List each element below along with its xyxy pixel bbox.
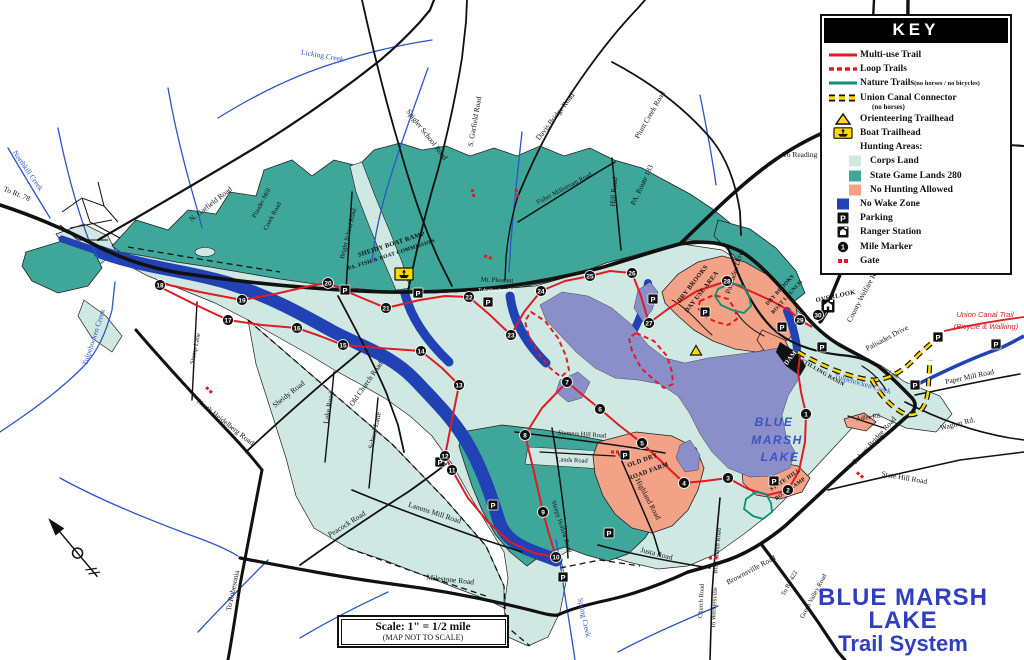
svg-text:11: 11 (449, 467, 456, 474)
mile-marker-30: 30 (813, 310, 824, 321)
line-dash-key-icon (826, 63, 860, 75)
scale-note: (MAP NOT TO SCALE) (342, 633, 505, 642)
key-item-corps-land: Corps Land (826, 154, 1006, 168)
key-item-label: No Wake Zone (860, 199, 920, 209)
svg-text:P: P (819, 343, 824, 352)
parking-icon: P (700, 307, 710, 317)
key-item-note: (no horses) (872, 103, 1006, 111)
mile-marker-17: 17 (223, 315, 234, 326)
key-item-label: Orienteering Trailhead (860, 114, 954, 124)
key-item-hunting-areas: Hunting Areas: (826, 140, 1006, 154)
svg-text:P: P (606, 529, 611, 538)
blue-marsh-trail-map: To Rt. 78N. Garfield RoadPlauder MillCre… (0, 0, 1024, 660)
scale-box: Scale: 1" = 1/2 mile (MAP NOT TO SCALE) (337, 615, 509, 648)
area-label: OVERLOOK (815, 289, 856, 304)
svg-text:20: 20 (324, 280, 332, 287)
key-item-nature-trails: Nature Trails (no horses / no bicycles) (826, 76, 1006, 90)
line-canal-key-icon (826, 92, 860, 104)
ranger-key-icon (826, 226, 860, 238)
mile-marker-24: 24 (536, 286, 547, 297)
key-item-label: No Hunting Allowed (870, 185, 953, 195)
title-line-1: BLUE MARSH (788, 586, 1018, 609)
key-item-label: Union Canal Connector (860, 93, 957, 103)
boat-key-icon (826, 127, 860, 139)
svg-text:2: 2 (786, 487, 790, 494)
key-item-label: Loop Trails (860, 64, 907, 74)
svg-text:3: 3 (726, 475, 730, 482)
svg-text:P: P (771, 477, 776, 486)
mile-marker-21: 21 (381, 303, 392, 314)
key-item-label: Nature Trails (860, 78, 914, 88)
key-legend: KEY Multi-use TrailLoop TrailsNature Tra… (820, 14, 1012, 275)
svg-text:P: P (485, 298, 490, 307)
svg-text:26: 26 (628, 270, 636, 277)
key-item-label: Corps Land (870, 156, 919, 166)
key-item-no-wake-zone: No Wake Zone (826, 197, 1006, 211)
svg-text:P: P (342, 286, 347, 295)
mile-marker-13: 13 (454, 380, 465, 391)
svg-text:7: 7 (565, 379, 569, 386)
svg-text:16: 16 (293, 325, 301, 332)
mile-marker-20: 20 (323, 278, 334, 289)
mile-marker-22: 22 (464, 292, 475, 303)
svg-text:P: P (779, 323, 784, 332)
svg-text:15: 15 (339, 342, 347, 349)
gate-key-icon (826, 255, 860, 267)
key-title: KEY (824, 18, 1008, 43)
mile-marker-4: 4 (679, 478, 690, 489)
svg-text:30: 30 (814, 312, 822, 319)
parking-icon: P (488, 500, 498, 510)
svg-text:P: P (415, 289, 420, 298)
mile-marker-3: 3 (723, 473, 734, 484)
scale-text: Scale: 1" = 1/2 mile (342, 621, 505, 633)
union-canal-label: Union Canal Trail (956, 310, 1014, 319)
mile-marker-15: 15 (338, 340, 349, 351)
svg-text:1: 1 (841, 244, 845, 251)
svg-text:23: 23 (507, 332, 515, 339)
mile-marker-29: 29 (795, 315, 806, 326)
parking-icon: P (604, 528, 614, 538)
mile-marker-7: 7 (562, 377, 573, 388)
ranger-station-icon (822, 300, 835, 313)
key-item-label: Ranger Station (860, 227, 921, 237)
parking-icon: P (620, 450, 630, 460)
svg-text:P: P (993, 340, 998, 349)
mile-marker-23: 23 (506, 330, 517, 341)
svg-text:28: 28 (723, 278, 731, 285)
gate-icon (856, 471, 864, 478)
key-item-label: Multi-use Trail (860, 50, 921, 60)
mile-marker-14: 14 (416, 346, 427, 357)
svg-text:10: 10 (552, 554, 560, 561)
svg-text:P: P (702, 308, 707, 317)
key-item-ranger-station: Ranger Station (826, 225, 1006, 239)
sw-pale-key-icon (826, 155, 870, 167)
road-label: S. Garfield Road (466, 96, 484, 148)
svg-text:4: 4 (682, 480, 686, 487)
mile-marker-9: 9 (538, 507, 549, 518)
mile-marker-8: 8 (520, 430, 531, 441)
svg-text:25: 25 (586, 273, 594, 280)
mile-marker-26: 26 (627, 268, 638, 279)
road-label: To Rt. 78 (2, 184, 32, 203)
parking-icon: P (340, 285, 350, 295)
svg-text:27: 27 (645, 320, 653, 327)
svg-text:18: 18 (156, 282, 164, 289)
title-line-3: Trail System (788, 632, 1018, 656)
mile-marker-10: 10 (551, 552, 562, 563)
svg-text:13: 13 (455, 382, 463, 389)
key-item-gate: Gate (826, 254, 1006, 268)
mile-marker-1: 1 (801, 409, 812, 420)
svg-text:19: 19 (238, 297, 246, 304)
key-item-parking: PParking (826, 211, 1006, 225)
north-arrow-icon (45, 516, 101, 580)
parking-icon: P (910, 380, 920, 390)
key-item-label: Boat Trailhead (860, 128, 921, 138)
parking-icon: P (933, 332, 943, 342)
key-item-note: (no horses / no bicycles) (914, 80, 980, 87)
sw-blue-key-icon (826, 198, 860, 210)
mile-marker-19: 19 (237, 295, 248, 306)
key-item-loop-trails: Loop Trails (826, 62, 1006, 76)
road-label: Plum Creek Road (633, 89, 668, 140)
key-item-orienteering-trailhead: Orienteering Trailhead (826, 112, 1006, 126)
svg-text:5: 5 (640, 440, 644, 447)
map-title: BLUE MARSH LAKE Trail System (788, 586, 1018, 656)
parking-icon: P (777, 322, 787, 332)
svg-text:P: P (935, 333, 940, 342)
gate-icon (205, 386, 213, 394)
line-teal-key-icon (826, 77, 860, 89)
svg-text:1: 1 (804, 411, 808, 418)
mile-marker-16: 16 (292, 323, 303, 334)
svg-text:6: 6 (598, 406, 602, 413)
svg-text:P: P (912, 381, 917, 390)
boat-trailhead-icon (395, 268, 413, 280)
mile-marker-18: 18 (155, 280, 166, 291)
parking-icon: P (483, 297, 493, 307)
svg-text:9: 9 (541, 509, 545, 516)
mile-marker-12: 12 (440, 451, 451, 462)
key-spacer (826, 141, 860, 153)
creek-label: Northkill Creek (11, 149, 46, 193)
key-item-label: Gate (860, 256, 880, 266)
mile-marker-5: 5 (637, 438, 648, 449)
svg-text:P: P (840, 214, 846, 224)
svg-text:17: 17 (224, 317, 232, 324)
mile-marker-25: 25 (585, 271, 596, 282)
sw-teal-key-icon (826, 170, 870, 182)
key-item-label: State Game Lands 280 (870, 171, 962, 181)
key-item-label: Hunting Areas: (860, 142, 922, 152)
key-items: Multi-use TrailLoop TrailsNature Trails … (822, 45, 1010, 273)
sw-salmon-key-icon (826, 184, 870, 196)
svg-text:12: 12 (441, 453, 449, 460)
parking-icon: P (413, 288, 423, 298)
key-item-no-hunting-allowed: No Hunting Allowed (826, 183, 1006, 197)
road-label: Davis Bridge Road (534, 91, 577, 142)
mile-key-icon: 1 (826, 241, 860, 253)
key-item-state-game-lands-280: State Game Lands 280 (826, 169, 1006, 183)
gate-icon (709, 557, 717, 560)
key-item-label: Parking (860, 213, 893, 223)
parking-icon: P (991, 339, 1001, 349)
svg-text:24: 24 (537, 288, 545, 295)
parking-icon: P (817, 342, 827, 352)
mile-marker-27: 27 (644, 318, 655, 329)
key-item-multi-use-trail: Multi-use Trail (826, 48, 1006, 62)
svg-text:29: 29 (796, 317, 804, 324)
tri-key-icon (826, 113, 860, 125)
creek-label: Licking Creek (300, 47, 344, 63)
mile-marker-11: 11 (447, 465, 458, 476)
key-item-mile-marker: 1Mile Marker (826, 239, 1006, 253)
mile-marker-2: 2 (783, 485, 794, 496)
svg-text:P: P (622, 451, 627, 460)
svg-text:14: 14 (417, 348, 425, 355)
road-label: Palisades Drive (864, 323, 910, 353)
parking-key-icon: P (826, 212, 860, 224)
svg-text:P: P (560, 573, 565, 582)
parking-icon: P (558, 572, 568, 582)
svg-text:22: 22 (465, 294, 473, 301)
svg-text:P: P (650, 295, 655, 304)
parking-icon: P (769, 476, 779, 486)
mile-marker-6: 6 (595, 404, 606, 415)
line-red-key-icon (826, 49, 860, 61)
title-line-2: LAKE (788, 609, 1018, 632)
svg-text:21: 21 (382, 305, 390, 312)
svg-text:8: 8 (523, 432, 527, 439)
key-item-boat-trailhead: Boat Trailhead (826, 126, 1006, 140)
svg-text:P: P (490, 501, 495, 510)
parking-icon: P (648, 294, 658, 304)
key-item-label: Mile Marker (860, 242, 913, 252)
mile-marker-28: 28 (722, 276, 733, 287)
